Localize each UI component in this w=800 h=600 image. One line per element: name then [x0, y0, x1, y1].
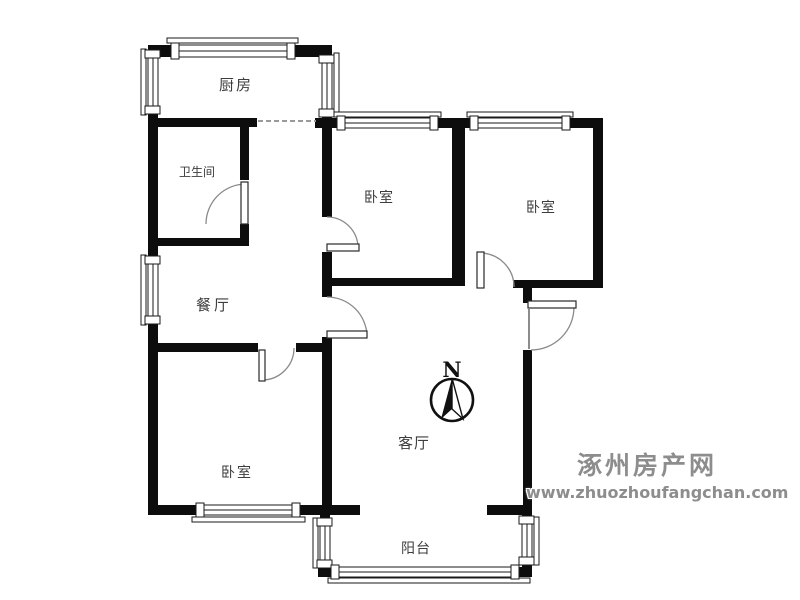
- room-label-bedroom-mid: 卧室: [364, 191, 394, 205]
- wall-segment: [322, 278, 465, 286]
- window-bedroom-right-north: [467, 112, 573, 130]
- wall-segment: [322, 118, 332, 217]
- wall-segment: [148, 343, 258, 352]
- window-kitchen-north: [167, 38, 298, 59]
- window-balcony-west: [313, 518, 332, 568]
- compass: N: [431, 357, 473, 421]
- door-dining-living: [327, 297, 367, 338]
- wall-segment: [240, 118, 249, 180]
- window-kitchen-east: [319, 53, 339, 117]
- door-bedroom-right: [477, 252, 514, 288]
- watermark-site-name: 涿州房产网: [577, 453, 717, 478]
- wall-segment: [322, 252, 332, 297]
- wall-segment: [452, 118, 465, 284]
- window-dining-west: [141, 255, 160, 325]
- room-label-bedroom-right: 卧室: [526, 201, 556, 215]
- door-entry: [528, 301, 576, 350]
- window-bedroom-mid-north: [334, 112, 441, 130]
- door-bedroom-mid: [327, 217, 359, 251]
- compass-needle-light: [452, 378, 463, 419]
- room-label-dining: 餐厅: [196, 298, 232, 313]
- room-label-kitchen: 厨房: [219, 78, 253, 93]
- wall-segment: [593, 118, 603, 288]
- floorplan-drawing: N: [0, 0, 800, 600]
- floorplan-page: N 厨房 卫生间 卧室 卧室 餐厅 客厅 卧室 阳台 涿州房产网 www.zhu…: [0, 0, 800, 600]
- door-bedroom-bottom: [259, 348, 294, 381]
- watermark-site-url: www.zhuozhoufangchan.com: [526, 485, 788, 501]
- window-kitchen-west: [141, 49, 160, 115]
- room-label-living: 客厅: [398, 436, 430, 451]
- window-bedroom-bottom-south: [192, 503, 305, 522]
- wall-segment: [487, 505, 532, 515]
- wall-segment: [513, 280, 603, 288]
- window-balcony-east: [519, 516, 539, 565]
- compass-needle-dark: [441, 378, 452, 419]
- room-label-balcony: 阳台: [401, 542, 431, 556]
- room-label-bedroom-bottom: 卧室: [221, 466, 253, 480]
- room-label-bathroom: 卫生间: [179, 166, 215, 178]
- wall-segment: [322, 337, 332, 510]
- wall-segment: [296, 343, 332, 352]
- window-balcony-south: [328, 565, 530, 583]
- door-bathroom: [206, 182, 248, 224]
- wall-segment: [148, 238, 248, 246]
